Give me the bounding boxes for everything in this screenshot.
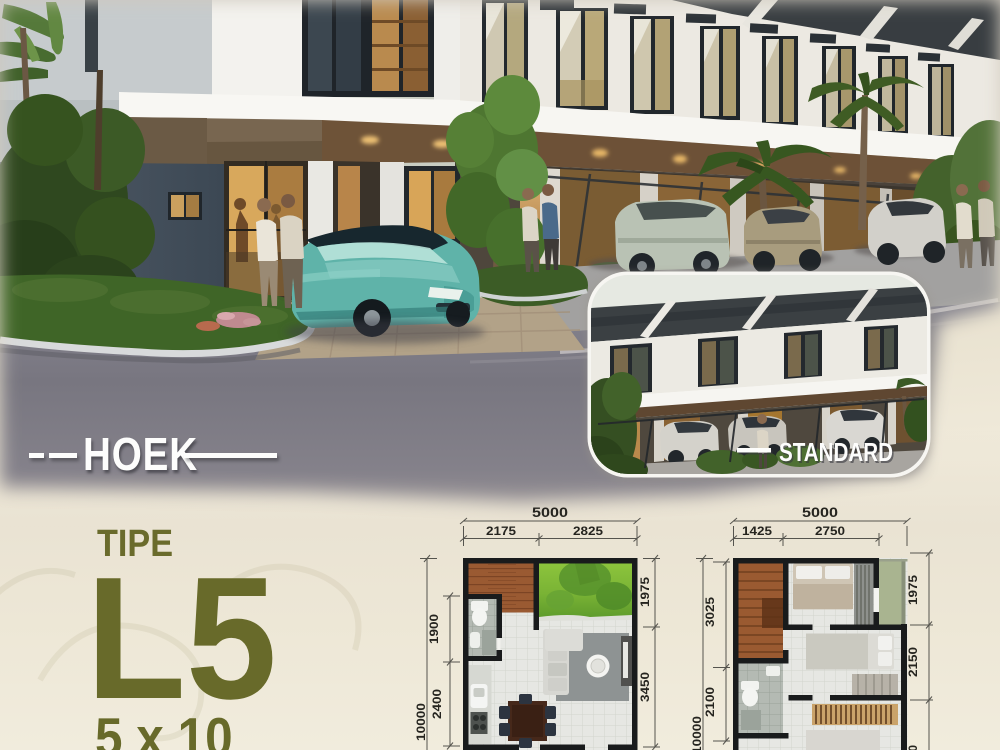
svg-text:10000: 10000 <box>416 703 428 741</box>
svg-text:1975: 1975 <box>908 574 920 605</box>
svg-text:1100: 1100 <box>908 745 920 750</box>
svg-text:2750: 2750 <box>815 526 845 538</box>
svg-text:1900: 1900 <box>429 614 441 644</box>
svg-text:10000: 10000 <box>692 716 704 750</box>
svg-text:1425: 1425 <box>742 526 773 538</box>
svg-text:1975: 1975 <box>640 576 652 607</box>
svg-text:3450: 3450 <box>640 672 652 702</box>
svg-text:2100: 2100 <box>705 687 717 717</box>
svg-text:2825: 2825 <box>573 526 604 538</box>
svg-text:5000: 5000 <box>802 505 838 520</box>
svg-text:2400: 2400 <box>432 689 444 719</box>
svg-text:5000: 5000 <box>532 505 568 520</box>
svg-text:2175: 2175 <box>486 526 517 538</box>
svg-text:3025: 3025 <box>705 596 717 627</box>
svg-text:2150: 2150 <box>908 647 920 677</box>
